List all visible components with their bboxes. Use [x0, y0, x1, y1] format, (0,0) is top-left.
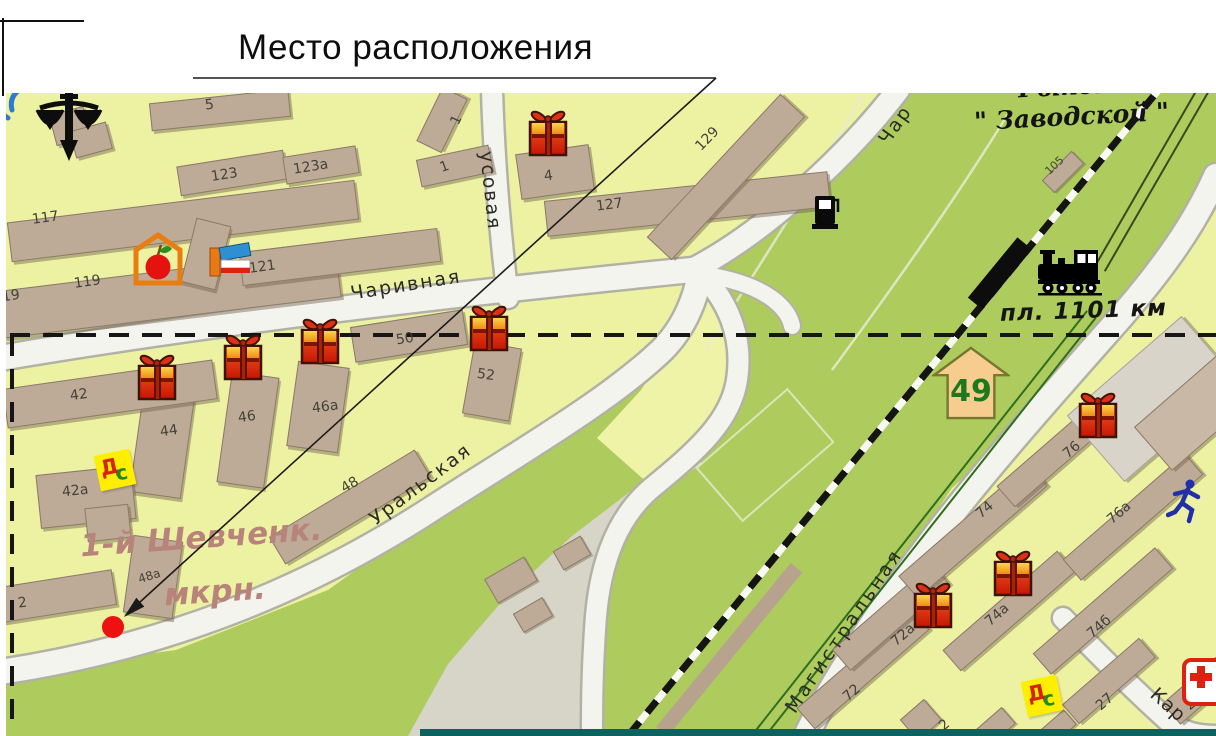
boundary-dashed-line-horizontal	[10, 333, 1216, 337]
route-arrow-number: 49	[932, 374, 1010, 409]
map-neatline-top	[0, 20, 84, 22]
building-label: 52	[476, 366, 496, 384]
gift-icon	[1076, 388, 1120, 445]
building-label: 127	[595, 195, 623, 214]
map-margin	[0, 18, 6, 736]
map-edge-strip	[420, 729, 1216, 736]
route-arrow-sign: 49	[932, 346, 1010, 420]
kindergarten-icon: Дс	[1021, 675, 1064, 718]
building-label: 50	[395, 330, 415, 349]
scales-of-justice-icon	[34, 88, 104, 167]
gift-icon	[221, 330, 265, 387]
district-label-line2: мкрн.	[163, 570, 267, 613]
map-neatline-left	[2, 18, 4, 96]
boundary-dashed-line-vertical	[10, 336, 14, 724]
map-screenshot: Чаривная Чар усовая Уральская Магистраль…	[0, 18, 1216, 736]
building-label: 44	[159, 422, 179, 440]
page-title: Место расположения	[238, 28, 593, 68]
map: Чаривная Чар усовая Уральская Магистраль…	[0, 18, 1216, 736]
kindergarten-icon: Дс	[94, 449, 137, 492]
building-label: 42	[69, 386, 89, 404]
building-label: 46	[237, 408, 257, 426]
medical-cross-icon	[1182, 658, 1216, 706]
books-icon	[208, 240, 254, 285]
gift-icon	[467, 301, 511, 358]
gift-icon	[526, 106, 570, 163]
building-label: 42а	[61, 482, 89, 501]
gift-icon	[991, 546, 1035, 603]
location-marker	[102, 616, 124, 638]
gift-icon	[298, 314, 342, 371]
gas-station-icon	[812, 190, 840, 237]
runner-icon	[1166, 478, 1204, 529]
train-icon	[1038, 246, 1102, 301]
building-label: 4	[543, 167, 554, 184]
produce-market-icon	[132, 230, 184, 293]
gift-icon	[135, 350, 179, 407]
title-band	[0, 18, 1216, 93]
gift-icon	[911, 578, 955, 635]
